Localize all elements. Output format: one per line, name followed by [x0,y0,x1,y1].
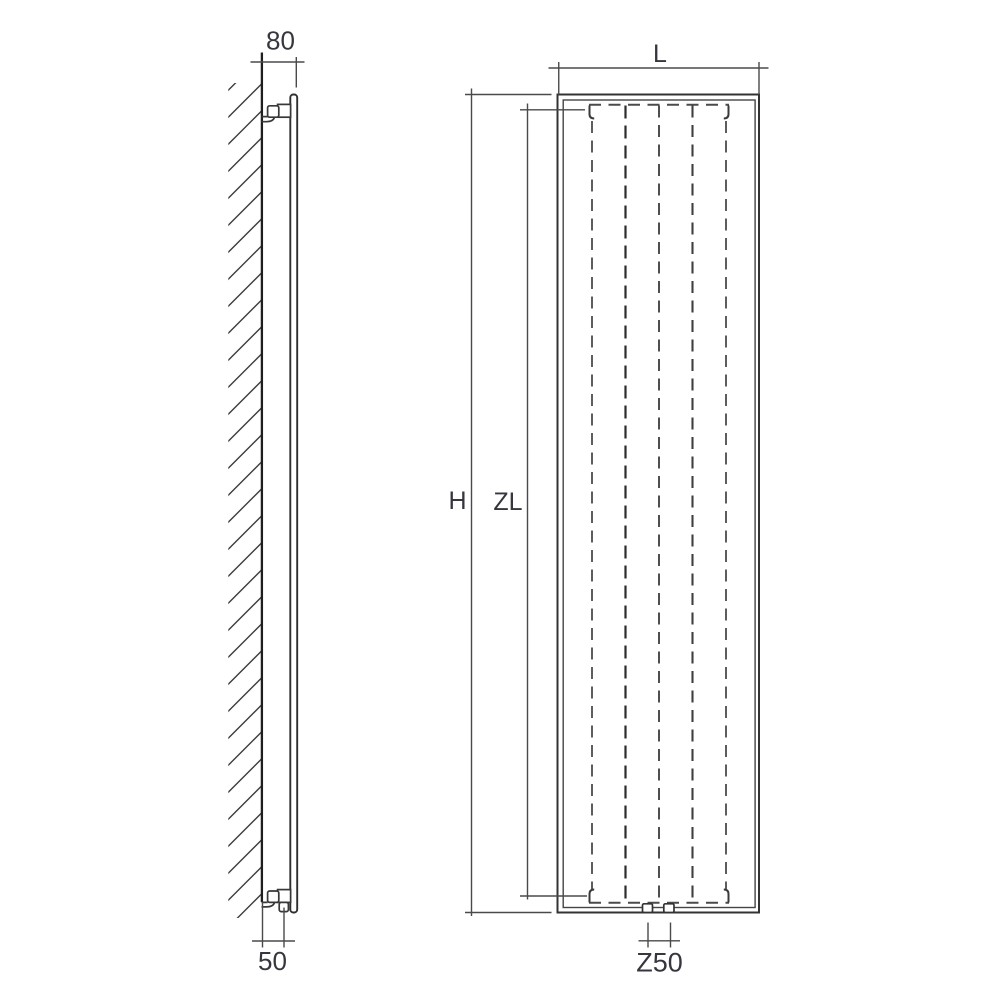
svg-text:ZL: ZL [493,488,522,516]
svg-text:Z50: Z50 [636,948,683,978]
svg-text:80: 80 [266,26,295,56]
svg-text:50: 50 [258,946,287,976]
svg-text:H: H [448,487,466,515]
svg-text:L: L [653,40,667,68]
